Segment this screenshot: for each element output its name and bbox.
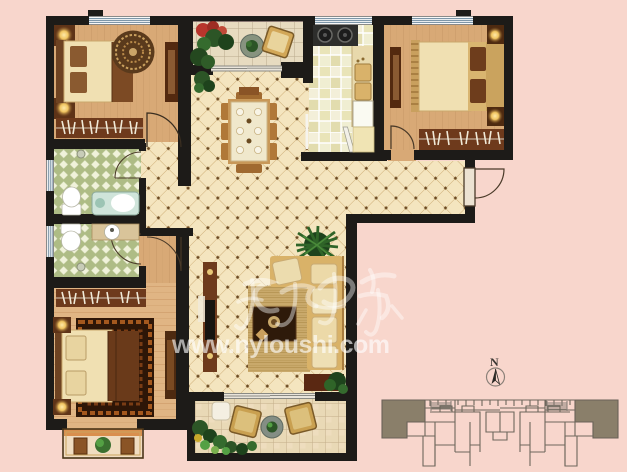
svg-text:N: N xyxy=(490,355,499,369)
svg-text:www.nyloushi.com: www.nyloushi.com xyxy=(171,331,390,359)
